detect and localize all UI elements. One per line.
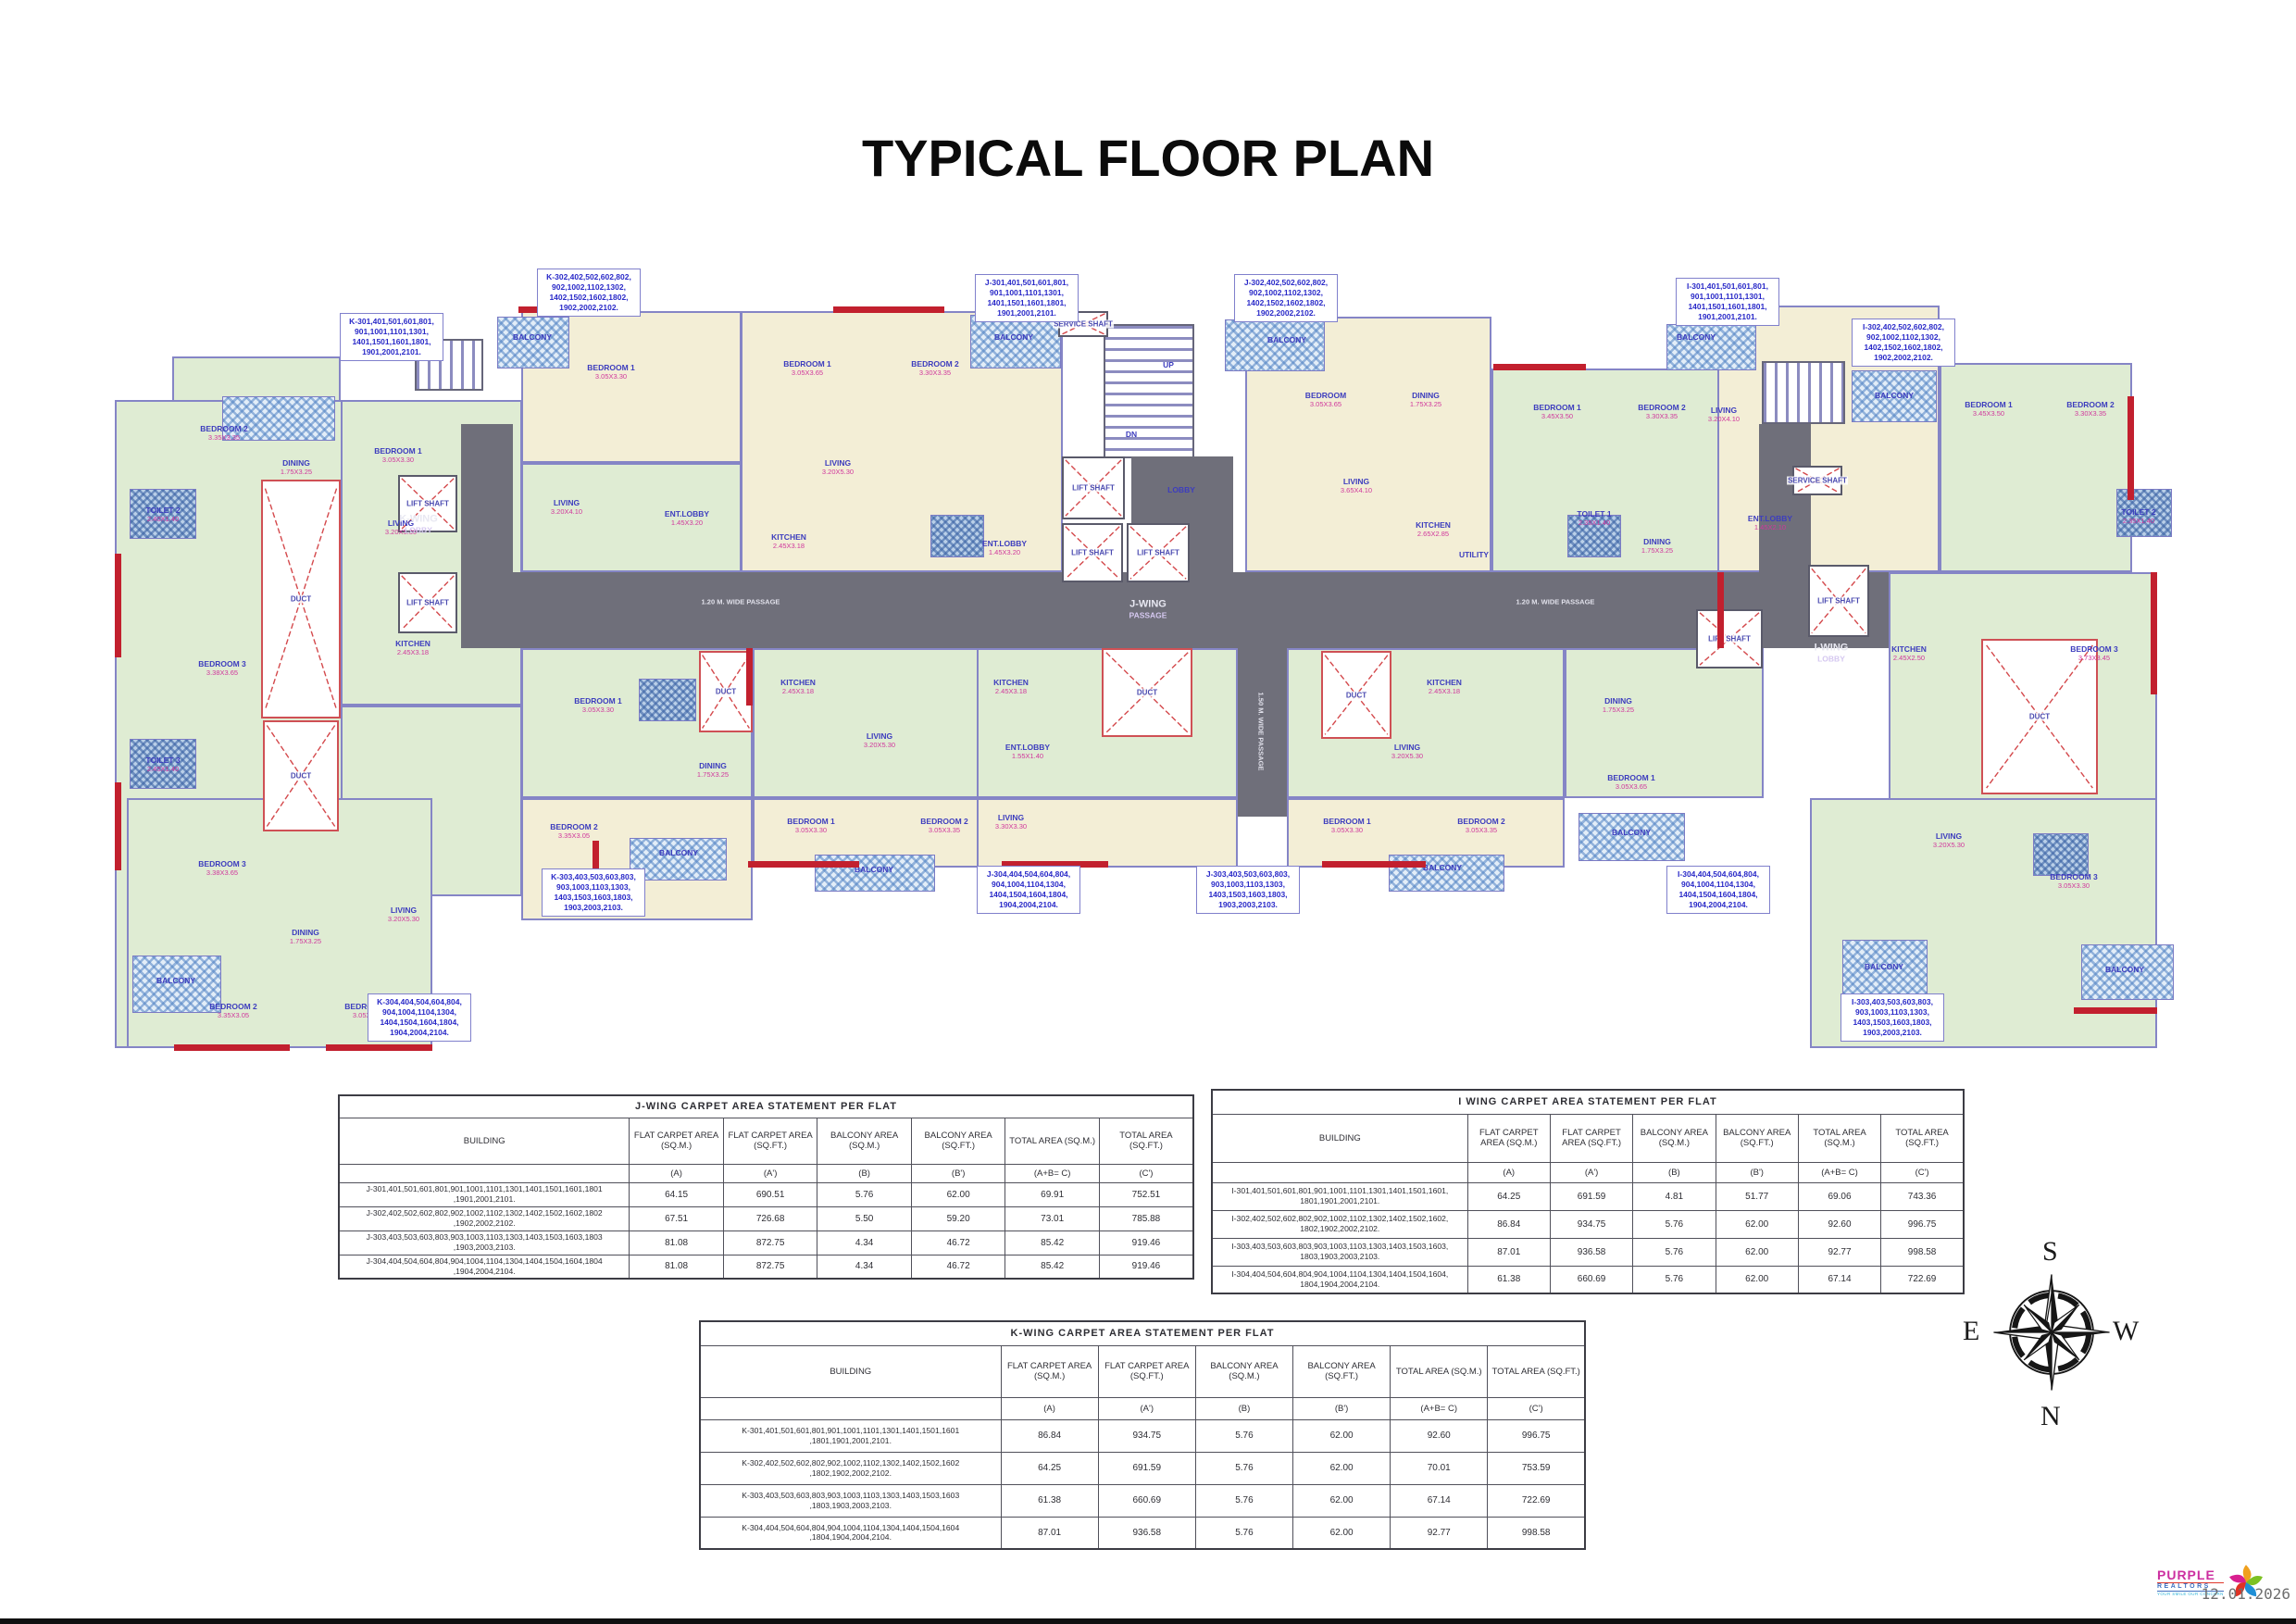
table-subheader: (B') (1716, 1162, 1798, 1182)
room-label: LIVING3.20X5.30 (864, 732, 895, 749)
lift-shaft-label: LIFT SHAFT (406, 500, 450, 508)
room-label: BALCONY (2105, 966, 2144, 975)
logo-name: PURPLE (2157, 1568, 2224, 1581)
floor-plan-page: TYPICAL FLOOR PLAN DUCTDUCTDUCTDUCTDUCTD… (0, 0, 2296, 1624)
room-label: DINING1.75X3.25 (1410, 392, 1441, 408)
balcony-hatch (1225, 319, 1325, 371)
room-label: TOILET 22.35X1.40 (2121, 508, 2155, 525)
room-label: ENT.LOBBY1.45X3.20 (665, 510, 709, 527)
table-cell: 46.72 (911, 1230, 1005, 1255)
room-label: DINING1.75X3.25 (290, 929, 321, 945)
table-cell: 61.38 (1001, 1484, 1098, 1517)
table-cell: 5.76 (1195, 1452, 1292, 1484)
bottom-border-bar (0, 1618, 2296, 1624)
room-label: LIVING3.20X5.30 (1391, 743, 1423, 760)
flat-number-annotation: I-301,401,501,601,801, 901,1001,1101,130… (1676, 278, 1779, 326)
table-cell: 87.01 (1001, 1517, 1098, 1549)
table-title: J-WING CARPET AREA STATEMENT PER FLAT (339, 1095, 1193, 1118)
table-cell: 61.38 (1467, 1266, 1550, 1293)
room-label: BALCONY (1875, 392, 1914, 401)
room-label: DINING1.75X3.25 (697, 762, 729, 779)
room-dimension: 3.05X3.30 (374, 456, 421, 465)
table-column-header: FLAT CARPET AREA (SQ.M.) (1001, 1345, 1098, 1397)
table-subheader: (A) (1001, 1397, 1098, 1419)
room-label: BEDROOM 13.05X3.30 (787, 818, 834, 834)
table-subheader: (A+B= C) (1005, 1164, 1100, 1182)
carpet-area-table: K-WING CARPET AREA STATEMENT PER FLATBUI… (699, 1320, 1586, 1550)
table-subheader: (B) (1633, 1162, 1716, 1182)
building-flat-numbers: J-301,401,501,601,801,901,1001,1101,1301… (339, 1182, 630, 1206)
room-dimension: 3.05X3.65 (783, 369, 830, 378)
duct: DUCT (263, 720, 339, 831)
table-cell: 691.59 (1550, 1182, 1632, 1210)
wall-segment (2074, 1007, 2157, 1014)
page-title: TYPICAL FLOOR PLAN (0, 128, 2296, 188)
room-dimension: 3.05X3.30 (787, 827, 834, 835)
room-label: BALCONY (1267, 336, 1306, 345)
flat-number-annotation: J-302,402,502,602,802, 902,1002,1102,130… (1234, 274, 1338, 322)
table-cell: 785.88 (1099, 1206, 1193, 1230)
room-label: UP (1163, 361, 1174, 370)
table-cell: 51.77 (1716, 1182, 1798, 1210)
table-cell: 62.00 (1293, 1419, 1391, 1452)
toilet-hatch (930, 515, 984, 557)
room-label: BEDROOM 23.30X3.35 (2066, 401, 2114, 418)
wall-segment (748, 861, 859, 868)
staircase (1104, 324, 1194, 458)
room-dimension: 3.45X3.50 (1965, 410, 2012, 418)
room-dimension: 3.20X5.30 (1391, 753, 1423, 761)
table-column-header: TOTAL AREA (SQ.M.) (1005, 1118, 1100, 1164)
table-subheader: (C') (1488, 1397, 1585, 1419)
table-column-header: BALCONY AREA (SQ.M.) (1195, 1345, 1292, 1397)
building-flat-numbers: I-303,403,503,603,803,903,1003,1103,1303… (1212, 1238, 1467, 1266)
room-label: BEDROOM 13.05X3.65 (1607, 774, 1654, 791)
table-cell: 872.75 (723, 1255, 817, 1279)
table-cell: 5.50 (817, 1206, 912, 1230)
building-flat-numbers: K-301,401,501,601,801,901,1001,1101,1301… (700, 1419, 1001, 1452)
building-flat-numbers: J-304,404,504,604,804,904,1004,1104,1304… (339, 1255, 630, 1279)
room-label: BEDROOM 23.05X3.35 (1457, 818, 1504, 834)
room-label: BEDROOM 13.05X3.65 (783, 360, 830, 377)
room-label: KITCHEN2.45X3.18 (395, 640, 430, 656)
building-flat-numbers: J-302,402,502,602,802,902,1002,1102,1302… (339, 1206, 630, 1230)
flat-number-annotation: I-302,402,502,602,802, 902,1002,1102,130… (1852, 319, 1955, 367)
flat-number-annotation: J-303,403,503,603,803, 903,1003,1103,130… (1196, 866, 1300, 914)
table-cell: 62.00 (1293, 1452, 1391, 1484)
room-dimension: 1.75X3.25 (697, 771, 729, 780)
lift-shaft-label: LIFT SHAFT (406, 599, 450, 607)
duct-label: DUCT (1136, 689, 1158, 697)
table-column-header: FLAT CARPET AREA (SQ.FT.) (1098, 1345, 1195, 1397)
room-dimension: 3.73X3.45 (2070, 655, 2117, 663)
room-label: BALCONY (1423, 864, 1462, 873)
room-label: BEDROOM 13.05X3.30 (574, 697, 621, 714)
room-dimension: 2.45X3.18 (993, 688, 1029, 696)
carpet-area-table-k: K-WING CARPET AREA STATEMENT PER FLATBUI… (699, 1320, 1586, 1550)
table-cell: 936.58 (1550, 1238, 1632, 1266)
room-dimension: 3.30X3.30 (995, 823, 1027, 831)
room-label: UTILITY (1459, 551, 1489, 560)
room-dimension: 3.05X3.65 (1607, 783, 1654, 792)
wall-segment (174, 1044, 290, 1051)
room-label: DINING1.75X3.25 (281, 459, 312, 476)
room-label: KITCHEN2.45X3.18 (780, 679, 816, 695)
table-column-header: BUILDING (1212, 1114, 1467, 1162)
passage-corridor (461, 424, 513, 648)
table-cell: 5.76 (1633, 1266, 1716, 1293)
table-cell: 4.81 (1633, 1182, 1716, 1210)
lift-shaft-label: LIFT SHAFT (1136, 549, 1180, 557)
room-dimension: 3.05X3.30 (587, 373, 634, 381)
table-subheader (339, 1164, 630, 1182)
duct-label: DUCT (290, 595, 312, 604)
table-title: K-WING CARPET AREA STATEMENT PER FLAT (700, 1321, 1585, 1345)
carpet-area-table-j: J-WING CARPET AREA STATEMENT PER FLATBUI… (338, 1094, 1194, 1280)
building-flat-numbers: K-303,403,503,603,803,903,1003,1103,1303… (700, 1484, 1001, 1517)
room-label: ENT.LOBBY1.55X1.40 (1005, 743, 1050, 760)
table-cell: 87.01 (1467, 1238, 1550, 1266)
room-label: BEDROOM 13.05X3.30 (1323, 818, 1370, 834)
wing-sublabel: PASSAGE (1129, 611, 1167, 620)
duct-label: DUCT (2028, 713, 2051, 721)
table-cell: 934.75 (1550, 1210, 1632, 1238)
passage-width-label: 1.20 M. WIDE PASSAGE (702, 598, 780, 606)
table-column-header: BALCONY AREA (SQ.FT.) (911, 1118, 1005, 1164)
table-cell: 64.15 (630, 1182, 724, 1206)
building-flat-numbers: I-301,401,501,601,801,901,1001,1101,1301… (1212, 1182, 1467, 1210)
table-subheader: (B) (1195, 1397, 1292, 1419)
table-cell: 919.46 (1099, 1255, 1193, 1279)
room-dimension: 3.20X5.30 (388, 916, 419, 924)
room-label: BALCONY (1612, 829, 1651, 838)
wall-segment (2151, 572, 2157, 694)
table-column-header: TOTAL AREA (SQ.M.) (1798, 1114, 1880, 1162)
room-dimension: 3.38X3.65 (198, 669, 245, 678)
room-label: LIVING3.20X5.30 (388, 906, 419, 923)
room-dimension: 2.45X1.40 (145, 766, 180, 774)
room-label: BEDROOM 13.45X3.50 (1533, 404, 1580, 420)
table-cell: 62.00 (1293, 1517, 1391, 1549)
table-column-header: TOTAL AREA (SQ.FT.) (1099, 1118, 1193, 1164)
table-cell: 85.42 (1005, 1255, 1100, 1279)
table-cell: 753.59 (1488, 1452, 1585, 1484)
table-column-header: BALCONY AREA (SQ.FT.) (1716, 1114, 1798, 1162)
table-cell: 660.69 (1550, 1266, 1632, 1293)
table-cell: 69.91 (1005, 1182, 1100, 1206)
staircase (1762, 361, 1845, 424)
wing-label: I-WINGLOBBY (1815, 642, 1849, 663)
table-cell: 67.51 (630, 1206, 724, 1230)
flat-number-annotation: I-303,403,503,603,803, 903,1003,1103,130… (1841, 993, 1944, 1042)
room-dimension: 1.55X1.40 (1005, 753, 1050, 761)
flat-number-annotation: K-304,404,504,604,804, 904,1004,1104,130… (368, 993, 471, 1042)
table-cell: 743.36 (1881, 1182, 1964, 1210)
flat-number-annotation: J-304,404,504,604,804, 904,1004,1104,130… (977, 866, 1080, 914)
room-dimension: 3.20X4.10 (1708, 416, 1740, 424)
room-dimension: 3.65X4.10 (1341, 487, 1372, 495)
room-label: LIVING3.20X4.10 (1708, 406, 1740, 423)
room-dimension: 2.40X1.40 (145, 516, 180, 524)
table-cell: 690.51 (723, 1182, 817, 1206)
table-subheader: (C') (1881, 1162, 1964, 1182)
lift-shaft: LIFT SHAFT (1808, 565, 1869, 637)
room-label: TOILET 22.40X1.40 (145, 506, 180, 523)
table-subheader (700, 1397, 1001, 1419)
table-cell: 691.59 (1098, 1452, 1195, 1484)
table-cell: 660.69 (1098, 1484, 1195, 1517)
table-cell: 81.08 (630, 1255, 724, 1279)
carpet-area-table: I WING CARPET AREA STATEMENT PER FLATBUI… (1211, 1089, 1965, 1294)
room-dimension: 1.45X3.20 (665, 519, 709, 528)
room-label: LIVING3.20X5.30 (822, 459, 854, 476)
compass-north-label: N (2040, 1401, 2061, 1432)
table-subheader: (C') (1099, 1164, 1193, 1182)
room-label: BALCONY (994, 333, 1033, 343)
passage-corridor (1759, 424, 1811, 648)
table-cell: 5.76 (817, 1182, 912, 1206)
table-subheader: (A) (1467, 1162, 1550, 1182)
table-column-header: FLAT CARPET AREA (SQ.FT.) (1550, 1114, 1632, 1162)
lift-shaft-label: SERVICE SHAFT (1787, 477, 1848, 485)
room-dimension: 1.75X3.25 (290, 938, 321, 946)
duct-label: DUCT (715, 688, 737, 696)
table-cell: 64.25 (1467, 1182, 1550, 1210)
room-dimension: 2.45X3.18 (395, 649, 430, 657)
lift-shaft: LIFT SHAFT (398, 572, 457, 633)
room-dimension: 1.45X2.10 (1748, 524, 1792, 532)
room-dimension: 3.35X3.05 (209, 1012, 256, 1020)
carpet-area-table: J-WING CARPET AREA STATEMENT PER FLATBUI… (338, 1094, 1194, 1280)
room-dimension: 1.75X3.25 (1641, 547, 1673, 556)
room-label: BEDROOM 23.05X3.35 (920, 818, 967, 834)
room-label: KITCHEN2.45X3.18 (771, 533, 806, 550)
wing-sublabel: LOBBY (399, 526, 438, 535)
table-cell: 46.72 (911, 1255, 1005, 1279)
table-cell: 86.84 (1467, 1210, 1550, 1238)
wing-sublabel: LOBBY (1815, 655, 1849, 664)
room-label: BEDROOM 33.05X3.30 (2050, 873, 2097, 890)
table-column-header: BUILDING (700, 1345, 1001, 1397)
wall-segment (115, 554, 121, 657)
room-label: BEDROOM 13.05X3.30 (374, 447, 421, 464)
compass-east-label: E (1963, 1316, 1979, 1347)
room-label: BEDROOM 33.38X3.65 (198, 860, 245, 877)
table-subheader: (B') (911, 1164, 1005, 1182)
room-label: BEDROOM 33.73X3.45 (2070, 645, 2117, 662)
table-cell: 64.25 (1001, 1452, 1098, 1484)
wall-segment (1717, 572, 1724, 648)
room-label: LOBBY (1167, 486, 1195, 495)
lift-shaft-label: LIFT SHAFT (1816, 597, 1861, 606)
wall-segment (1493, 364, 1586, 370)
table-cell: 5.76 (1195, 1419, 1292, 1452)
room-dimension: 3.30X3.35 (1638, 413, 1685, 421)
table-cell: 5.76 (1633, 1210, 1716, 1238)
room-dimension: 3.05X3.30 (574, 706, 621, 715)
unit-block (1940, 363, 2132, 572)
lift-shaft-label: LIFT SHAFT (1070, 549, 1115, 557)
table-cell: 73.01 (1005, 1206, 1100, 1230)
wall-segment (115, 782, 121, 870)
building-flat-numbers: K-302,402,502,602,802,902,1002,1102,1302… (700, 1452, 1001, 1484)
room-label: BEDROOM 23.35X3.35 (200, 425, 247, 442)
table-column-header: TOTAL AREA (SQ.FT.) (1488, 1345, 1585, 1397)
duct: DUCT (699, 651, 753, 732)
room-label: BEDROOM 13.05X3.30 (587, 364, 634, 381)
flat-number-annotation: K-301,401,501,601,801, 901,1001,1101,130… (340, 313, 443, 361)
room-dimension: 3.30X3.35 (911, 369, 958, 378)
room-dimension: 1.45X3.20 (982, 549, 1027, 557)
table-subheader: (A') (1550, 1162, 1632, 1182)
room-label: BALCONY (855, 866, 893, 875)
table-cell: 62.00 (1716, 1210, 1798, 1238)
wall-segment (746, 648, 753, 706)
room-dimension: 2.45X3.18 (1427, 688, 1462, 696)
room-label: ENT.LOBBY1.45X2.10 (1748, 515, 1792, 531)
room-dimension: 1.75X3.25 (281, 468, 312, 477)
table-cell: 62.00 (1716, 1238, 1798, 1266)
room-label: LIVING3.30X3.30 (995, 814, 1027, 831)
wing-label: J-WINGPASSAGE (1129, 598, 1167, 619)
lift-shaft: LIFT SHAFT (1062, 456, 1125, 519)
table-cell: 726.68 (723, 1206, 817, 1230)
table-column-header: TOTAL AREA (SQ.FT.) (1881, 1114, 1964, 1162)
room-label: LIVING3.20X5.30 (1933, 832, 1965, 849)
room-dimension: 3.05X3.30 (1323, 827, 1370, 835)
toilet-hatch (639, 679, 696, 721)
wall-segment (1322, 861, 1426, 868)
wing-label: K-WINGLOBBY (399, 513, 438, 534)
room-dimension: 3.05X3.65 (1305, 401, 1346, 409)
duct: DUCT (261, 480, 341, 718)
room-label: BEDROOM3.05X3.65 (1305, 392, 1346, 408)
flat-number-annotation: I-304,404,504,604,804, 904,1004,1104,130… (1666, 866, 1770, 914)
room-label: BEDROOM 23.35X3.05 (550, 823, 597, 840)
balcony-hatch (1666, 324, 1756, 370)
room-label: KITCHEN2.45X2.50 (1891, 645, 1927, 662)
room-dimension: 3.05X3.30 (2050, 882, 2097, 891)
duct: DUCT (1102, 648, 1192, 737)
table-cell: 67.14 (1798, 1266, 1880, 1293)
table-cell: 62.00 (1716, 1266, 1798, 1293)
room-label: KITCHEN2.65X2.85 (1416, 521, 1451, 538)
duct: DUCT (1321, 651, 1391, 739)
room-label: BEDROOM 23.30X3.35 (911, 360, 958, 377)
room-dimension: 3.20X5.30 (864, 742, 895, 750)
room-dimension: 3.38X3.65 (198, 869, 245, 878)
unit-block (1565, 648, 1764, 798)
room-dimension: 1.75X3.25 (1410, 401, 1441, 409)
room-dimension: 2.35X1.40 (2121, 518, 2155, 526)
room-label: TOILET 12.35X1.40 (1577, 510, 1611, 527)
table-column-header: BALCONY AREA (SQ.M.) (1633, 1114, 1716, 1162)
table-cell: 936.58 (1098, 1517, 1195, 1549)
room-label: BEDROOM 23.35X3.05 (209, 1003, 256, 1019)
table-cell: 81.08 (630, 1230, 724, 1255)
table-cell: 919.46 (1099, 1230, 1193, 1255)
room-label: KITCHEN2.45X3.18 (993, 679, 1029, 695)
room-label: BALCONY (1677, 333, 1716, 343)
building-flat-numbers: K-304,404,504,604,804,904,1004,1104,1304… (700, 1517, 1001, 1549)
table-cell: 722.69 (1881, 1266, 1964, 1293)
room-dimension: 3.35X3.05 (550, 832, 597, 841)
table-cell: 5.76 (1633, 1238, 1716, 1266)
table-title: I WING CARPET AREA STATEMENT PER FLAT (1212, 1090, 1964, 1114)
unit-block (977, 798, 1238, 868)
room-label: BALCONY (513, 333, 552, 343)
table-column-header: FLAT CARPET AREA (SQ.FT.) (723, 1118, 817, 1164)
room-dimension: 2.45X3.18 (780, 688, 816, 696)
carpet-area-table-i: I WING CARPET AREA STATEMENT PER FLATBUI… (1211, 1089, 1965, 1294)
lift-shaft-label: LIFT SHAFT (1707, 635, 1752, 643)
table-cell: 998.58 (1488, 1517, 1585, 1549)
room-dimension: 2.45X3.18 (771, 543, 806, 551)
wall-segment (833, 306, 944, 313)
room-dimension: 1.75X3.25 (1603, 706, 1634, 715)
table-subheader: (A') (723, 1164, 817, 1182)
table-subheader (1212, 1162, 1467, 1182)
table-cell: 85.42 (1005, 1230, 1100, 1255)
table-cell: 67.14 (1391, 1484, 1488, 1517)
wall-segment (326, 1044, 432, 1051)
compass-south-label: S (2042, 1236, 2058, 1268)
table-cell: 996.75 (1488, 1419, 1585, 1452)
room-dimension: 3.30X3.35 (2066, 410, 2114, 418)
lift-shaft: LIFT SHAFT (1696, 609, 1763, 668)
table-cell: 5.76 (1195, 1517, 1292, 1549)
table-cell: 4.34 (817, 1230, 912, 1255)
table-cell: 59.20 (911, 1206, 1005, 1230)
table-column-header: BALCONY AREA (SQ.FT.) (1293, 1345, 1391, 1397)
table-column-header: FLAT CARPET AREA (SQ.M.) (630, 1118, 724, 1164)
room-label: BEDROOM 33.38X3.65 (198, 660, 245, 677)
room-label: BEDROOM 23.30X3.35 (1638, 404, 1685, 420)
lift-shaft: SERVICE SHAFT (1792, 466, 1842, 495)
room-dimension: 3.05X3.35 (1457, 827, 1504, 835)
table-subheader: (A+B= C) (1391, 1397, 1488, 1419)
wall-segment (2128, 396, 2134, 500)
table-cell: 4.34 (817, 1255, 912, 1279)
table-cell: 722.69 (1488, 1484, 1585, 1517)
table-subheader: (B) (817, 1164, 912, 1182)
room-label: DINING1.75X3.25 (1603, 697, 1634, 714)
table-subheader: (A') (1098, 1397, 1195, 1419)
compass-rose: S E W N (1963, 1236, 2139, 1435)
room-label: LIVING3.65X4.10 (1341, 478, 1372, 494)
room-label: BEDROOM 13.45X3.50 (1965, 401, 2012, 418)
table-cell: 752.51 (1099, 1182, 1193, 1206)
table-column-header: TOTAL AREA (SQ.M.) (1391, 1345, 1488, 1397)
room-label: BALCONY (1865, 963, 1903, 972)
table-cell: 92.77 (1798, 1238, 1880, 1266)
room-dimension: 3.20X5.30 (822, 468, 854, 477)
room-dimension: 3.20X4.10 (551, 508, 582, 517)
room-dimension: 2.45X2.50 (1891, 655, 1927, 663)
table-subheader: (B') (1293, 1397, 1391, 1419)
lift-shaft: LIFT SHAFT (1062, 523, 1123, 582)
table-cell: 92.60 (1798, 1210, 1880, 1238)
table-column-header: BALCONY AREA (SQ.M.) (817, 1118, 912, 1164)
table-cell: 998.58 (1881, 1238, 1964, 1266)
table-cell: 92.77 (1391, 1517, 1488, 1549)
room-label: BALCONY (659, 849, 698, 858)
duct-label: DUCT (290, 772, 312, 781)
room-dimension: 3.35X3.35 (200, 434, 247, 443)
passage-width-label: 1.50 M. WIDE PASSAGE (1257, 693, 1266, 771)
building-flat-numbers: I-302,402,502,602,802,902,1002,1102,1302… (1212, 1210, 1467, 1238)
table-subheader: (A+B= C) (1798, 1162, 1880, 1182)
